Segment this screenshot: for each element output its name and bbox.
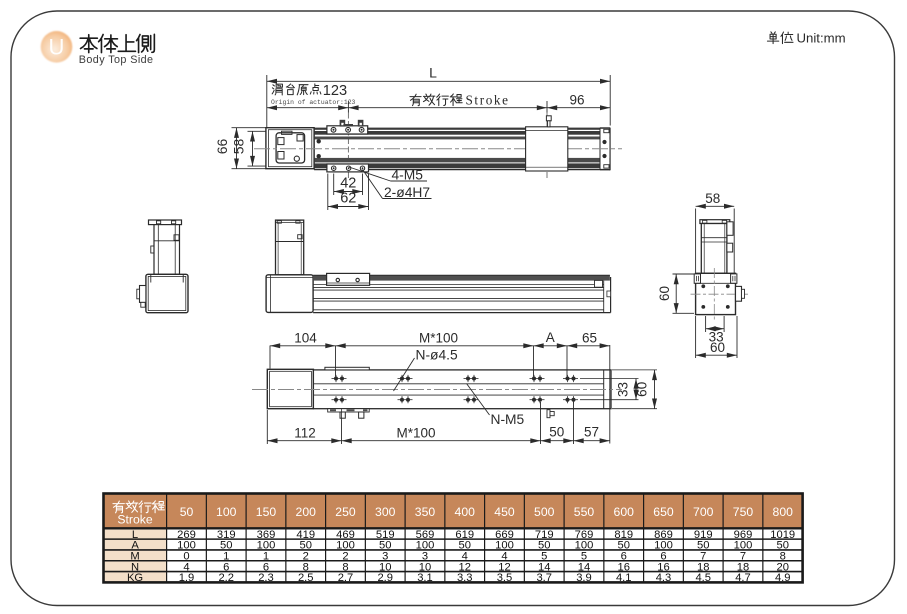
svg-text:Stroke: Stroke xyxy=(466,92,510,107)
svg-text:M*100: M*100 xyxy=(419,330,458,345)
svg-text:4-M5: 4-M5 xyxy=(392,168,424,183)
svg-text:60: 60 xyxy=(657,286,672,301)
svg-text:300: 300 xyxy=(375,505,396,519)
svg-text:100: 100 xyxy=(216,505,237,519)
svg-text:50: 50 xyxy=(549,425,564,440)
svg-text:Stroke: Stroke xyxy=(117,513,152,527)
svg-text:N-ø4.5: N-ø4.5 xyxy=(416,347,458,362)
svg-text:400: 400 xyxy=(455,505,476,519)
svg-text:Origin of actuator:123: Origin of actuator:123 xyxy=(271,99,356,106)
svg-text:450: 450 xyxy=(494,505,515,519)
svg-text:A: A xyxy=(546,330,555,345)
svg-text:500: 500 xyxy=(534,505,555,519)
svg-text:62: 62 xyxy=(340,191,356,207)
svg-text:2-ø4H7: 2-ø4H7 xyxy=(384,185,430,200)
svg-text:250: 250 xyxy=(335,505,356,519)
svg-text:750: 750 xyxy=(733,505,754,519)
svg-text:800: 800 xyxy=(773,505,794,519)
svg-text:58: 58 xyxy=(231,139,247,155)
svg-text:112: 112 xyxy=(294,425,316,440)
svg-text:60: 60 xyxy=(710,340,725,355)
svg-text:700: 700 xyxy=(693,505,714,519)
svg-text:96: 96 xyxy=(569,93,584,108)
svg-text:104: 104 xyxy=(294,330,317,345)
svg-text:66: 66 xyxy=(214,139,230,155)
svg-text:65: 65 xyxy=(582,330,597,345)
svg-text:M*100: M*100 xyxy=(396,425,435,440)
svg-text:33: 33 xyxy=(616,382,631,397)
svg-text:L: L xyxy=(429,65,437,81)
svg-text:50: 50 xyxy=(180,505,194,519)
svg-text:350: 350 xyxy=(415,505,436,519)
svg-text:57: 57 xyxy=(584,425,599,440)
svg-text:550: 550 xyxy=(574,505,595,519)
svg-text:Body Top Side: Body Top Side xyxy=(79,54,154,66)
svg-text:123: 123 xyxy=(323,83,347,99)
svg-text:600: 600 xyxy=(614,505,635,519)
svg-text:200: 200 xyxy=(296,505,317,519)
svg-text:650: 650 xyxy=(653,505,674,519)
svg-text:U: U xyxy=(49,35,65,60)
svg-text:60: 60 xyxy=(634,382,649,397)
svg-text:58: 58 xyxy=(705,191,720,206)
svg-text:42: 42 xyxy=(340,175,356,191)
svg-text:N-M5: N-M5 xyxy=(491,412,525,427)
svg-text:150: 150 xyxy=(256,505,277,519)
svg-text:Unit:mm: Unit:mm xyxy=(797,30,846,45)
